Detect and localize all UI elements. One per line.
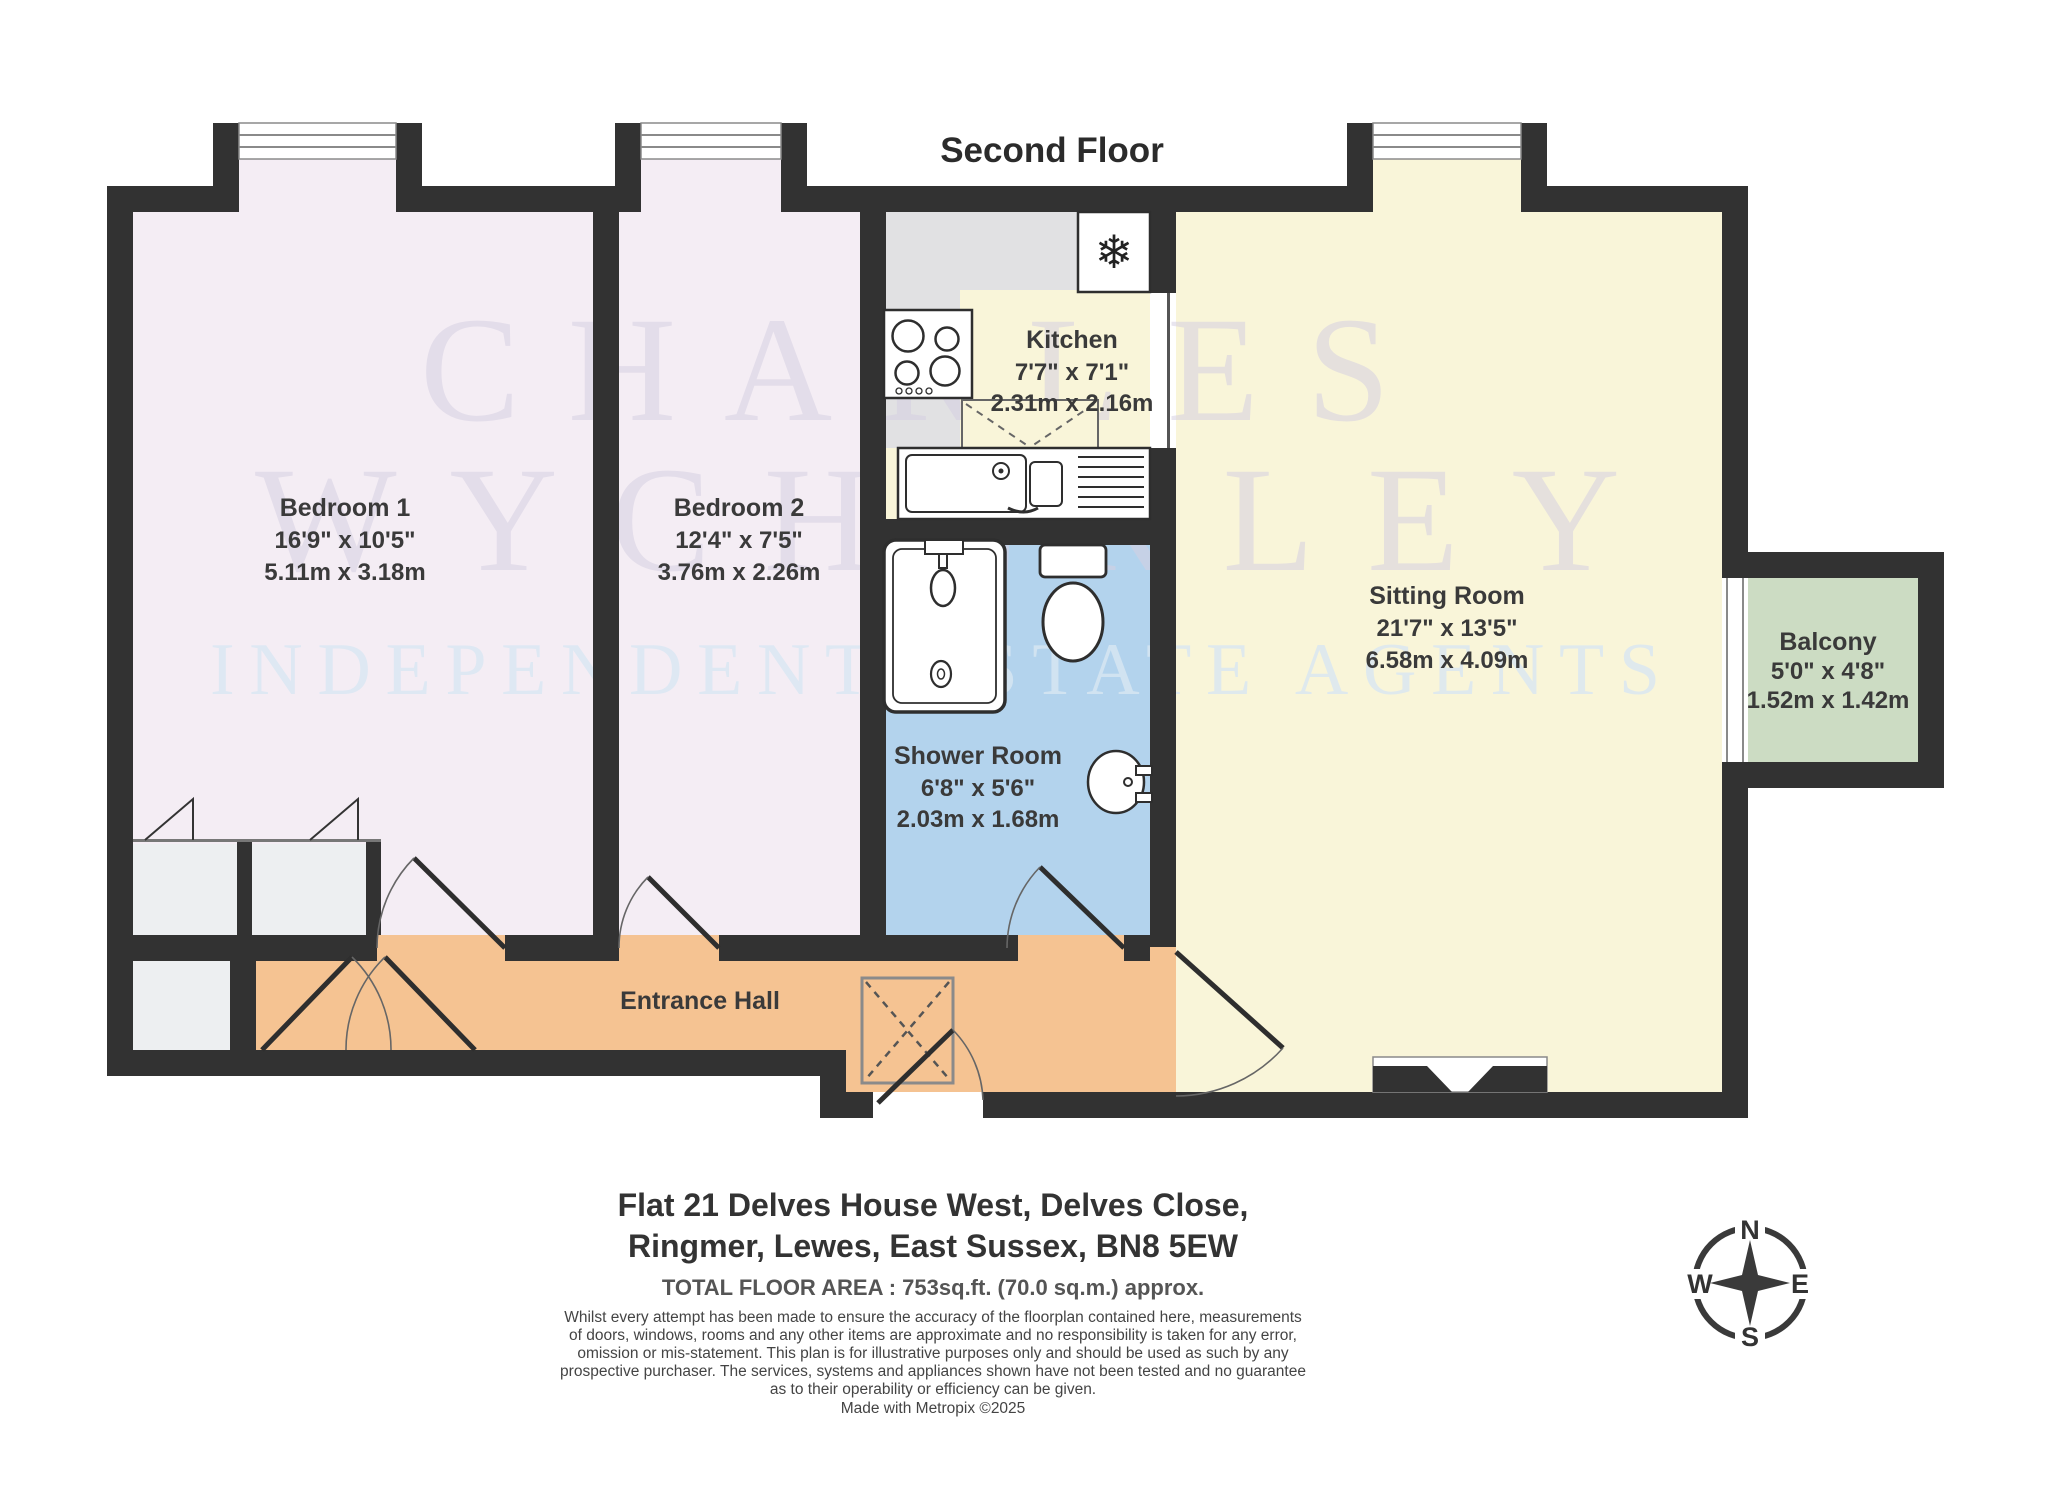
total-floor-area: TOTAL FLOOR AREA : 753sq.ft. (70.0 sq.m.… <box>662 1275 1204 1300</box>
bedroom2-name: Bedroom 2 <box>674 494 805 522</box>
sitting-imperial: 21'7" x 13'5" <box>1377 615 1518 642</box>
floorplan-page: CHARLES WYCHERLEY INDEPENDENT ESTATE AGE… <box>0 0 2048 1512</box>
compass-north: N <box>1740 1215 1760 1245</box>
bedroom2-bay-floor <box>641 157 781 214</box>
wardrobe-recess-2 <box>252 844 366 935</box>
fridge-freezer: ❄ <box>1078 212 1150 292</box>
balcony-imperial: 5'0" x 4'8" <box>1771 658 1885 685</box>
hob <box>884 310 972 398</box>
hall-name: Entrance Hall <box>620 987 780 1015</box>
shower-metric: 2.03m x 1.68m <box>897 806 1060 833</box>
bedroom2-door-gap <box>619 935 719 961</box>
compass-west: W <box>1687 1269 1713 1299</box>
compass-icon: N E S W <box>1684 1214 1814 1352</box>
footer: Flat 21 Delves House West, Delves Close,… <box>560 1187 1306 1417</box>
kitchen-counter-top <box>886 212 1078 290</box>
hall-storage-cupboard <box>862 978 953 1083</box>
credit-line: Made with Metropix ©2025 <box>841 1400 1026 1417</box>
disclaimer-line-2: of doors, windows, rooms and any other i… <box>569 1327 1297 1344</box>
hall-closet <box>133 961 230 1050</box>
bedroom1-imperial: 16'9" x 10'5" <box>275 527 416 554</box>
bedroom1-name: Bedroom 1 <box>280 494 411 522</box>
floorplan-canvas: CHARLES WYCHERLEY INDEPENDENT ESTATE AGE… <box>0 0 2048 1512</box>
room-label-bedroom1: Bedroom 1 16'9" x 10'5" 5.11m x 3.18m <box>264 494 425 586</box>
hall-sitting-opening <box>1150 947 1176 1092</box>
kitchen-name: Kitchen <box>1026 326 1118 354</box>
room-fills <box>133 157 1918 1092</box>
bedroom1-metric: 5.11m x 3.18m <box>264 559 425 586</box>
bedroom1-bay-floor <box>239 157 396 214</box>
kitchen-metric: 2.31m x 2.16m <box>991 390 1154 417</box>
snowflake-icon: ❄ <box>1095 226 1134 278</box>
compass-east: E <box>1791 1269 1809 1299</box>
compass-south: S <box>1741 1322 1759 1352</box>
disclaimer-line-4: prospective purchaser. The services, sys… <box>560 1363 1306 1380</box>
page-title: Second Floor <box>940 131 1164 170</box>
bedroom1-bay-window <box>239 123 396 159</box>
balcony-name: Balcony <box>1779 628 1876 656</box>
sitting-metric: 6.58m x 4.09m <box>1366 647 1529 674</box>
sitting-bay-floor <box>1373 157 1521 214</box>
kitchen-sink <box>898 448 1150 519</box>
counter-edge-line <box>1167 293 1170 448</box>
toilet <box>1040 545 1106 661</box>
sitting-name: Sitting Room <box>1369 582 1525 610</box>
shower-tray <box>884 540 1005 712</box>
bedroom2-imperial: 12'4" x 7'5" <box>675 527 803 554</box>
shower-door-gap <box>1018 935 1124 961</box>
kitchen-imperial: 7'7" x 7'1" <box>1015 359 1129 386</box>
disclaimer-line-5: as to their operability or efficiency ca… <box>770 1381 1096 1398</box>
sitting-bay-window <box>1373 123 1521 159</box>
bedroom2-metric: 3.76m x 2.26m <box>658 559 821 586</box>
wardrobe-recess-1 <box>133 844 237 935</box>
balcony-metric: 1.52m x 1.42m <box>1747 687 1910 714</box>
bedroom1-door-gap <box>377 935 505 961</box>
wardrobe-front-line <box>133 839 381 842</box>
sitting-bottom-window <box>1373 1057 1547 1092</box>
disclaimer-line-1: Whilst every attempt has been made to en… <box>564 1309 1302 1326</box>
shower-name: Shower Room <box>894 742 1062 770</box>
shower-imperial: 6'8" x 5'6" <box>921 775 1035 802</box>
compass-star <box>1710 1240 1790 1326</box>
room-label-bedroom2: Bedroom 2 12'4" x 7'5" 3.76m x 2.26m <box>658 494 821 586</box>
disclaimer-line-3: omission or mis-statement. This plan is … <box>577 1345 1289 1362</box>
room-label-sitting: Sitting Room 21'7" x 13'5" 6.58m x 4.09m <box>1366 582 1529 674</box>
address-line2: Ringmer, Lewes, East Sussex, BN8 5EW <box>628 1228 1239 1264</box>
balcony-door-window <box>1722 578 1748 762</box>
address-line1: Flat 21 Delves House West, Delves Close, <box>618 1187 1249 1223</box>
bedroom2-bay-window <box>641 123 781 159</box>
